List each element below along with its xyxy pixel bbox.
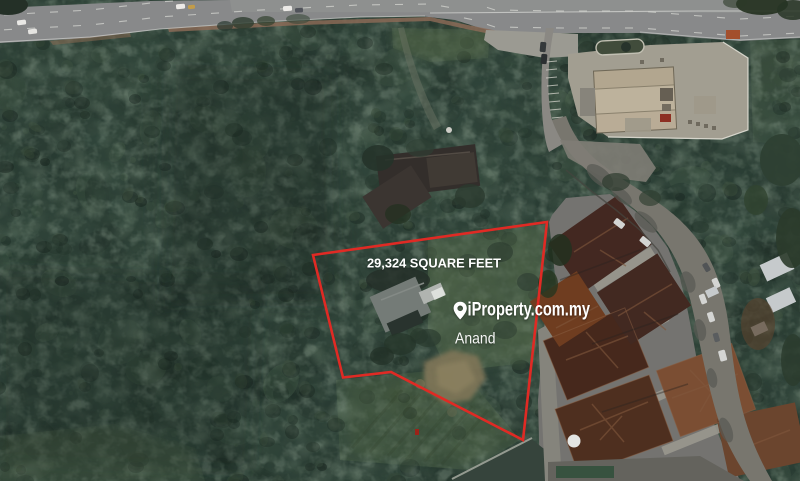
svg-text:Anand: Anand: [455, 331, 496, 348]
svg-text:29,324 SQUARE FEET: 29,324 SQUARE FEET: [367, 256, 501, 271]
svg-text:iProperty.com.my: iProperty.com.my: [468, 300, 591, 321]
